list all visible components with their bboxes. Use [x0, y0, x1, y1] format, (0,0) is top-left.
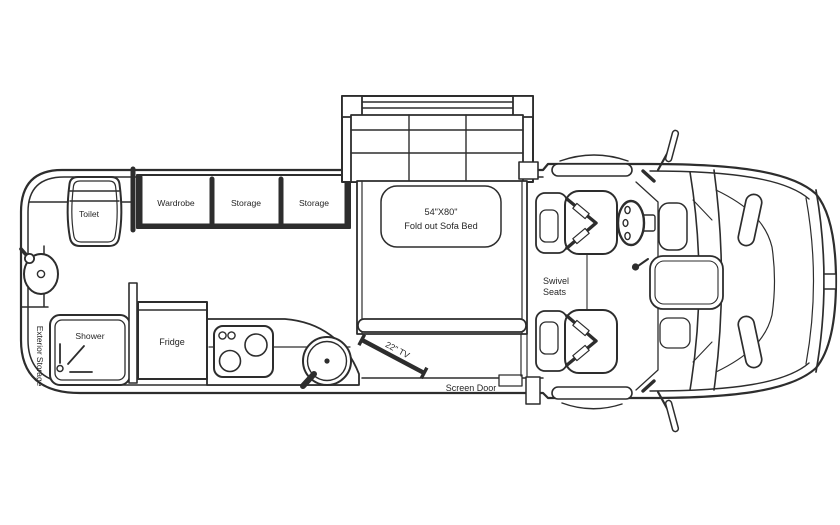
fridge-label: Fridge — [159, 337, 185, 347]
storage-2-label: Storage — [299, 198, 329, 208]
swivel-seats-label-line2: Seats — [543, 287, 567, 297]
shower — [50, 315, 130, 385]
storage-1-label: Storage — [231, 198, 261, 208]
toilet-label: Toilet — [79, 209, 100, 219]
door-jamb — [526, 377, 540, 404]
entry-step — [499, 375, 522, 386]
shower-label: Shower — [75, 331, 104, 341]
instrument-cluster — [659, 203, 687, 250]
kitchen-sink-icon — [303, 337, 351, 386]
exterior-storage-label: Exterior Storage — [35, 326, 45, 387]
swivel-seats-label-line1: Swivel — [543, 276, 569, 286]
swivel-seat-bottom — [536, 310, 617, 373]
floorplan-svg: Toilet Wardrobe Storage Storage 54"X80" … — [0, 0, 840, 525]
kitchen-divider-wall — [129, 283, 137, 383]
wardrobe-label: Wardrobe — [157, 198, 195, 208]
running-board-top — [552, 164, 632, 176]
sofa-bed-size-label: 54"X80" — [424, 207, 457, 217]
sofa-bed-name-label: Fold out Sofa Bed — [404, 221, 478, 231]
cab-join-stub — [519, 162, 538, 179]
rv-floorplan-image: Toilet Wardrobe Storage Storage 54"X80" … — [0, 0, 840, 525]
steering-wheel-icon — [618, 201, 644, 245]
engine-cover — [650, 256, 723, 309]
cooktop-icon — [214, 326, 273, 377]
sofa-slide-out — [342, 96, 533, 182]
running-board-bottom — [552, 387, 632, 399]
screen-door-label: Screen Door — [446, 383, 497, 393]
bumper-detail — [824, 274, 836, 289]
swivel-seat-top — [536, 191, 617, 254]
